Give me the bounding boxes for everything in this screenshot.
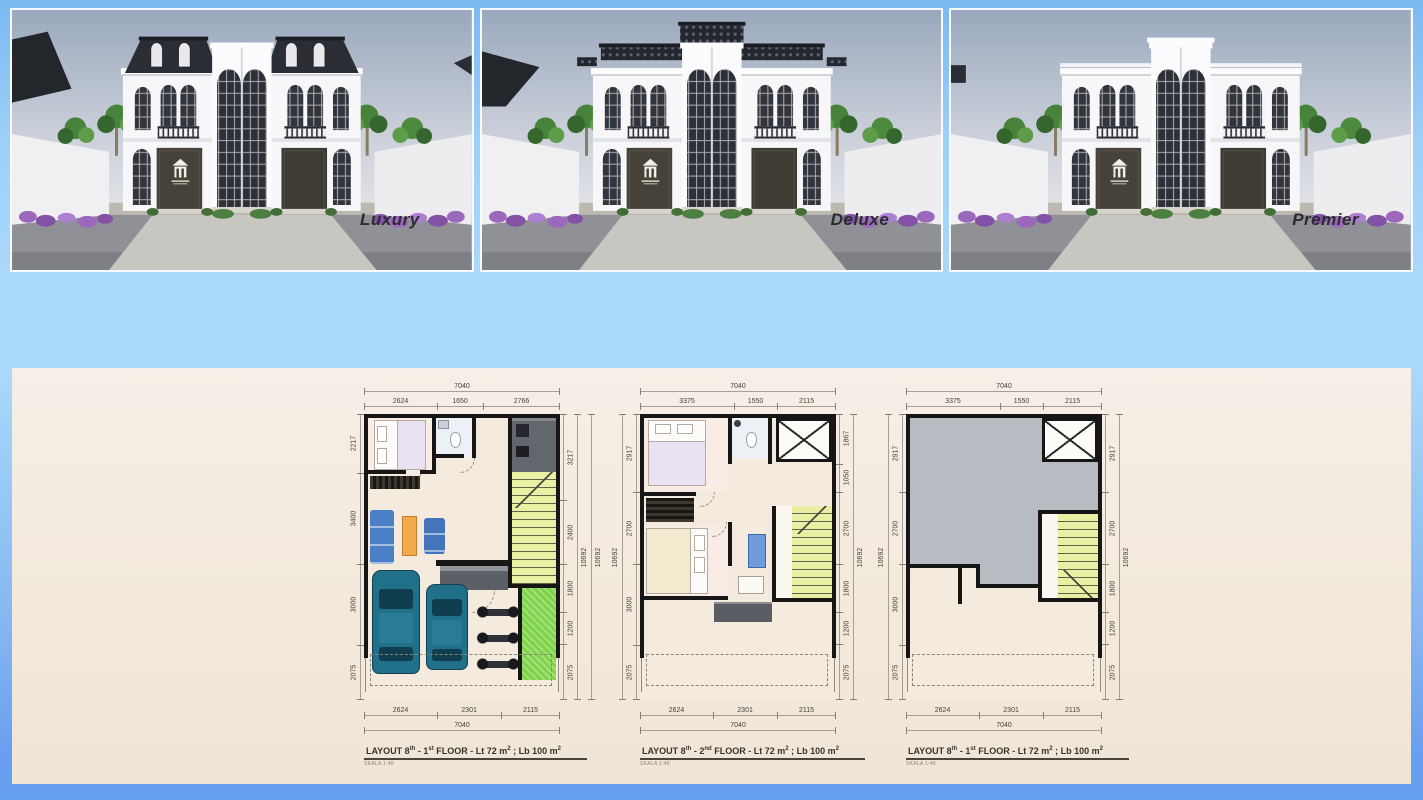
plan1-left-dims: 2217 3400 3000 2075 bbox=[350, 414, 364, 700]
wardrobe bbox=[646, 498, 694, 522]
dim-label: 1550 bbox=[1014, 397, 1030, 406]
dim-label: 3375 bbox=[679, 397, 695, 406]
variant-label-premier: Premier bbox=[1292, 210, 1359, 230]
armchair bbox=[424, 518, 445, 554]
plan1-right-dims: 3217 2400 1800 1200 2075 bbox=[560, 414, 574, 700]
render-panel-luxury: Luxury bbox=[10, 8, 474, 272]
plan2-top-dims: 3375 1550 2115 bbox=[640, 397, 836, 410]
roof-deck bbox=[1042, 462, 1098, 510]
dim-label: 2700 bbox=[843, 520, 850, 536]
dim-label: 2075 bbox=[567, 664, 574, 680]
dim-label: 2075 bbox=[843, 664, 850, 680]
motorcycle bbox=[476, 628, 520, 648]
kitchen-sink bbox=[516, 446, 529, 457]
void-open-below bbox=[776, 418, 832, 462]
dim-label: 1800 bbox=[1109, 581, 1116, 597]
dim-label: 2115 bbox=[523, 706, 538, 715]
plan3-top-total: 7040 bbox=[906, 382, 1102, 395]
wardrobe bbox=[370, 476, 420, 489]
wash-basin bbox=[738, 576, 764, 594]
house-render-premier-illustration bbox=[951, 10, 1411, 270]
plan1-bottom-dims: 2624 2301 2115 bbox=[364, 706, 560, 719]
balcony bbox=[714, 602, 772, 622]
staircase bbox=[1058, 514, 1098, 598]
entry-door bbox=[1096, 148, 1142, 209]
plan1-right-total-2: 10692 bbox=[588, 414, 602, 700]
plan3-top-dims: 3375 1550 2115 bbox=[906, 397, 1102, 410]
toilet bbox=[450, 432, 461, 448]
void-open-below bbox=[1042, 418, 1098, 462]
coffee-table bbox=[402, 516, 417, 556]
dim-label: 10692 bbox=[612, 547, 619, 566]
plan3-right-total: 10692 bbox=[1116, 414, 1130, 700]
dim-label: 2917 bbox=[1109, 445, 1116, 461]
dim-label: 2917 bbox=[626, 445, 633, 461]
dim-label: 2766 bbox=[514, 397, 530, 406]
dim-label: 2624 bbox=[935, 706, 951, 715]
dim-label: 2301 bbox=[737, 706, 753, 715]
dim-label: 2400 bbox=[567, 524, 574, 540]
bed bbox=[648, 420, 706, 486]
plan3-left-total: 10692 bbox=[878, 414, 892, 700]
variant-label-deluxe: Deluxe bbox=[831, 210, 890, 230]
floor-plan-board: 2217 3400 3000 2075 7040 2624 1650 2766 bbox=[12, 368, 1411, 784]
sink bbox=[438, 420, 449, 429]
stair-landing bbox=[776, 506, 792, 598]
door-swing-arc bbox=[700, 492, 715, 507]
dim-label: 2075 bbox=[892, 664, 899, 680]
dim-label: 10692 bbox=[1123, 547, 1130, 566]
dim-label: 1867 bbox=[843, 431, 850, 447]
dim-label: 1550 bbox=[748, 397, 764, 406]
neighbor-roof bbox=[951, 65, 966, 83]
plan3-bottom-dims: 2624 2301 2115 bbox=[906, 706, 1102, 719]
render-strip: Luxury bbox=[10, 8, 1413, 272]
dim-label: 2115 bbox=[1065, 397, 1080, 406]
render-panel-deluxe: Deluxe bbox=[480, 8, 944, 272]
dim-label: 1200 bbox=[843, 621, 850, 637]
dim-label: 1200 bbox=[567, 621, 574, 637]
dim-label: 2217 bbox=[350, 436, 357, 452]
dim-label: 1650 bbox=[452, 397, 468, 406]
dim-label: 10692 bbox=[857, 547, 864, 566]
plan2-title: LAYOUT 8th - 2nd FLOOR - Lt 72 m2 ; Lb 1… bbox=[640, 746, 865, 760]
plan3-scale-note: SKALA 1:48 bbox=[906, 761, 936, 767]
plan2-bottom-dims: 2624 2301 2115 bbox=[640, 706, 836, 719]
entry-door bbox=[157, 148, 203, 209]
dim-label: 3217 bbox=[567, 449, 574, 465]
dim-label: 7040 bbox=[730, 721, 746, 730]
sofa bbox=[370, 510, 394, 564]
floor-plan-1: 2217 3400 3000 2075 7040 2624 1650 2766 bbox=[350, 382, 602, 767]
dim-label: 2115 bbox=[1065, 706, 1080, 715]
plan1-top-total: 7040 bbox=[364, 382, 560, 395]
dim-label: 2075 bbox=[626, 664, 633, 680]
dim-label: 10692 bbox=[878, 547, 885, 566]
dim-label: 2075 bbox=[350, 664, 357, 680]
cabinet bbox=[748, 534, 766, 568]
door-swing-arc bbox=[460, 458, 475, 473]
dim-label: 2700 bbox=[1109, 520, 1116, 536]
dim-label: 2624 bbox=[669, 706, 685, 715]
plan1-drawing bbox=[364, 414, 560, 700]
dim-label: 2115 bbox=[799, 706, 814, 715]
plan1-scale-note: SKALA 1:48 bbox=[364, 761, 394, 767]
dim-label: 2624 bbox=[393, 397, 409, 406]
plan1-bottom-total: 7040 bbox=[364, 721, 560, 734]
plan3-left-dims: 2917 2700 3000 2075 bbox=[892, 414, 906, 700]
bed bbox=[646, 528, 708, 594]
bed bbox=[374, 420, 426, 470]
carport-roof-outline bbox=[646, 654, 828, 686]
plan3-right-dims: 2917 2700 1800 1200 2075 bbox=[1102, 414, 1116, 700]
dim-label: 2624 bbox=[393, 706, 409, 715]
dim-label: 2115 bbox=[799, 397, 814, 406]
dim-label: 2700 bbox=[892, 520, 899, 536]
dim-label: 7040 bbox=[730, 382, 746, 391]
plan2-right-total: 10692 bbox=[850, 414, 864, 700]
plan2-left-dims: 2917 2700 3000 2075 bbox=[626, 414, 640, 700]
toilet bbox=[746, 432, 757, 448]
dim-label: 7040 bbox=[454, 721, 470, 730]
plan3-title: LAYOUT 8th - 1st FLOOR - Lt 72 m2 ; Lb 1… bbox=[906, 746, 1129, 760]
plan3-drawing bbox=[906, 414, 1102, 700]
kitchen-counter bbox=[512, 418, 556, 472]
floor-plan-2: 10692 2917 2700 3000 2075 7040 3375 1550… bbox=[612, 382, 864, 767]
house-render-deluxe-illustration bbox=[482, 10, 942, 270]
shower-head bbox=[734, 420, 741, 427]
dim-label: 3400 bbox=[350, 511, 357, 527]
dim-label: 2075 bbox=[1109, 664, 1116, 680]
dim-label: 10692 bbox=[581, 547, 588, 566]
stair-landing bbox=[1042, 514, 1058, 598]
carport-roof-outline bbox=[912, 654, 1094, 686]
dim-label: 10692 bbox=[595, 547, 602, 566]
dim-label: 3000 bbox=[626, 597, 633, 613]
dim-label: 3000 bbox=[350, 597, 357, 613]
dim-label: 7040 bbox=[454, 382, 470, 391]
plan2-left-total: 10692 bbox=[612, 414, 626, 700]
plan2-drawing bbox=[640, 414, 836, 700]
dim-label: 7040 bbox=[996, 721, 1012, 730]
plan3-bottom-total: 7040 bbox=[906, 721, 1102, 734]
dim-label: 3375 bbox=[945, 397, 961, 406]
variant-label-luxury: Luxury bbox=[360, 210, 420, 230]
dim-label: 1800 bbox=[567, 581, 574, 597]
motorcycle bbox=[476, 602, 520, 622]
dim-label: 7040 bbox=[996, 382, 1012, 391]
staircase bbox=[792, 506, 832, 598]
dim-label: 2301 bbox=[461, 706, 477, 715]
render-panel-premier: Premier bbox=[949, 8, 1413, 272]
dim-label: 1800 bbox=[843, 581, 850, 597]
plan2-scale-note: SKALA 1:48 bbox=[640, 761, 670, 767]
plan2-right-dims: 1867 1050 2700 1800 1200 2075 bbox=[836, 414, 850, 700]
plan1-title: LAYOUT 8th - 1st FLOOR - Lt 72 m2 ; Lb 1… bbox=[364, 746, 587, 760]
dim-label: 2917 bbox=[892, 445, 899, 461]
dim-label: 2700 bbox=[626, 520, 633, 536]
entry-door bbox=[626, 148, 672, 209]
roof-deck bbox=[978, 564, 1042, 584]
dim-label: 1200 bbox=[1109, 621, 1116, 637]
dim-label: 2301 bbox=[1003, 706, 1019, 715]
plan2-top-total: 7040 bbox=[640, 382, 836, 395]
roof-deck bbox=[910, 418, 1042, 564]
stove bbox=[516, 424, 529, 437]
carport-outline bbox=[370, 654, 552, 686]
dim-label: 3000 bbox=[892, 597, 899, 613]
floor-plan-3: 10692 2917 2700 3000 2075 7040 3375 1550… bbox=[878, 382, 1130, 767]
staircase bbox=[512, 472, 556, 584]
plan2-bottom-total: 7040 bbox=[640, 721, 836, 734]
dim-label: 1050 bbox=[843, 470, 850, 486]
plan1-right-total: 10692 bbox=[574, 414, 588, 700]
plan1-top-dims: 2624 1650 2766 bbox=[364, 397, 560, 410]
house-render-luxury-illustration bbox=[12, 10, 472, 270]
